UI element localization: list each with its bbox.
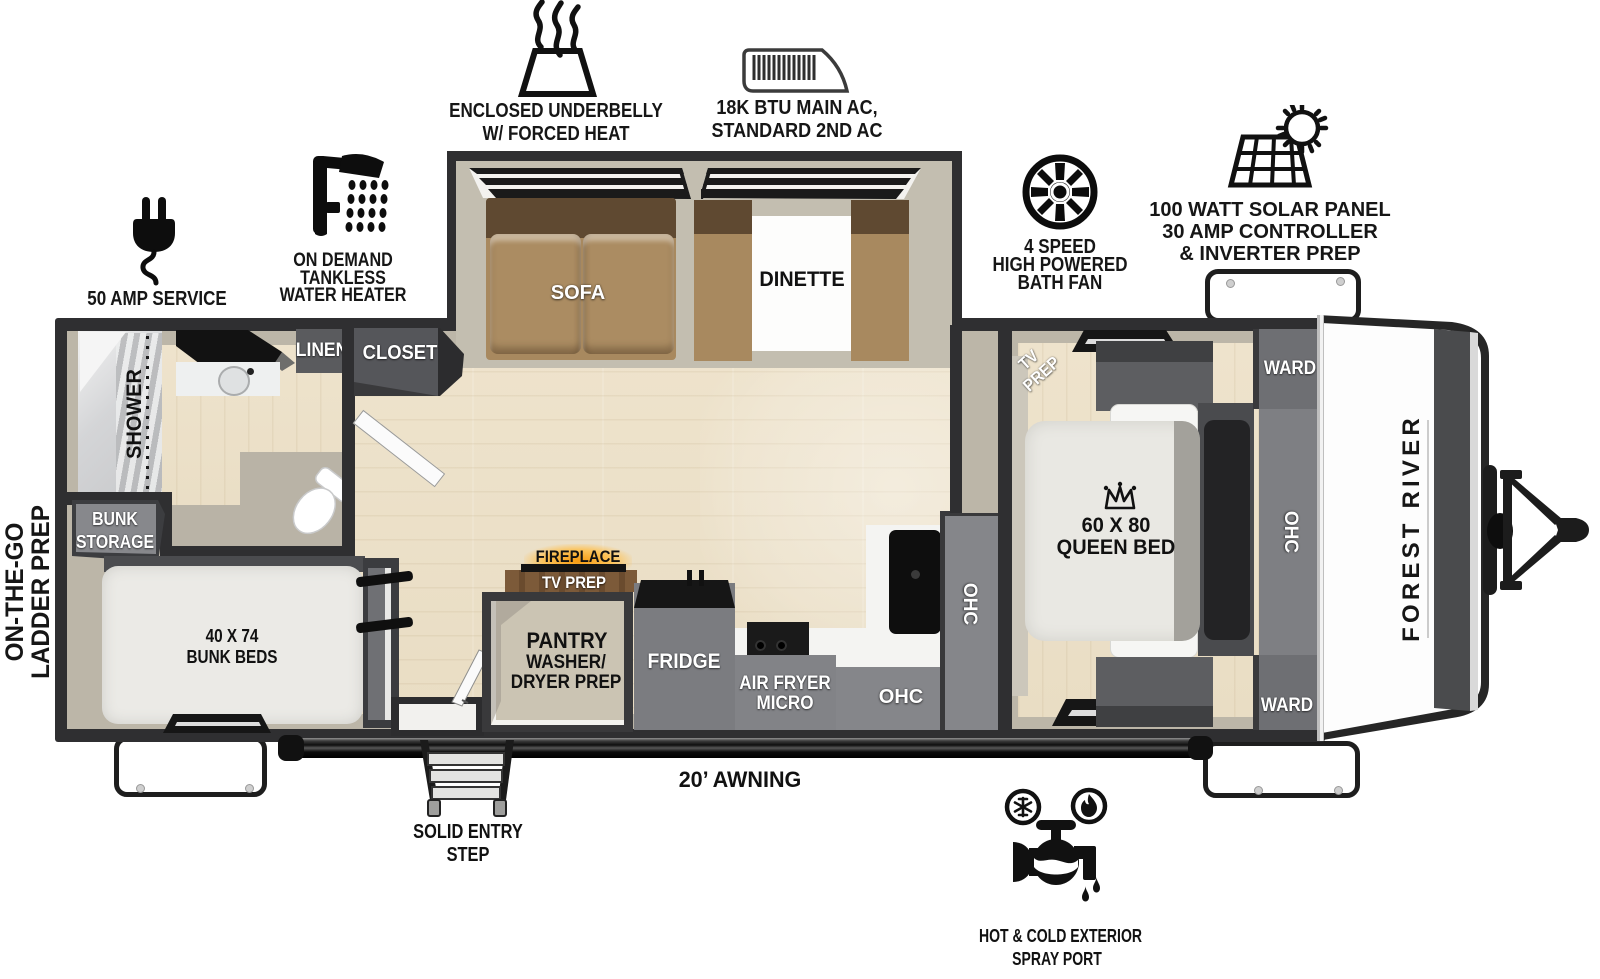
svg-text:FOREST RIVER: FOREST RIVER [1398,414,1425,642]
